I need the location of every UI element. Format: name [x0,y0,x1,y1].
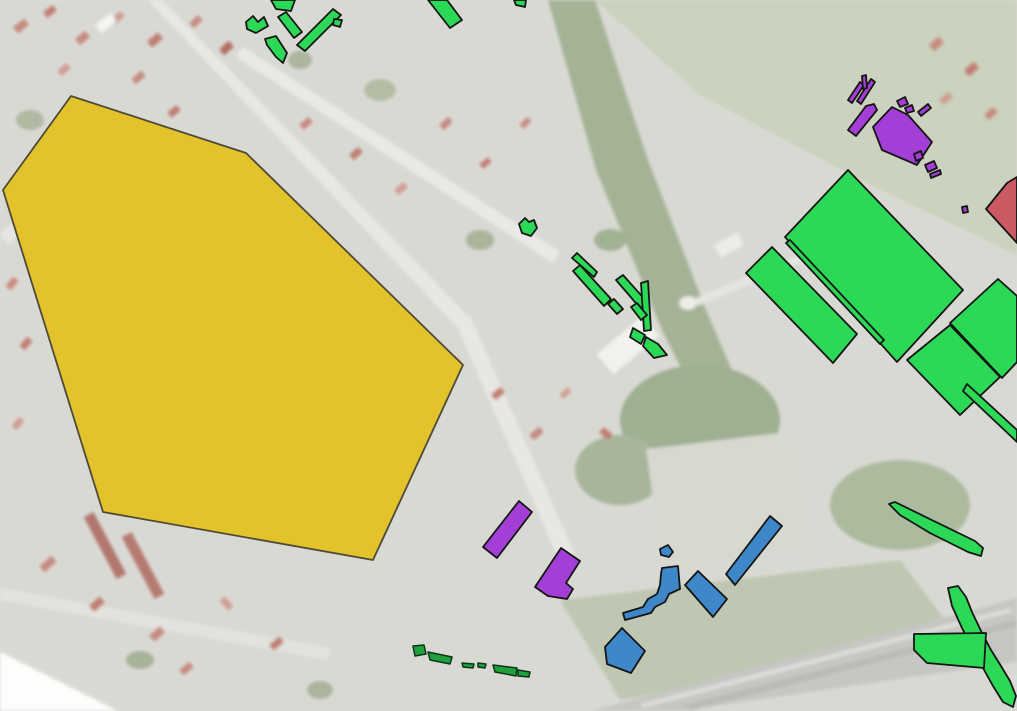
basemap-tree-dot [307,681,333,699]
green-building-feature[interactable] [333,19,342,27]
dark-green-vegetation-feature[interactable] [478,663,486,668]
basemap-tree-dot [466,230,494,250]
basemap-tree-dot [594,229,626,251]
purple-building-feature[interactable] [962,206,968,213]
dark-green-vegetation-feature[interactable] [518,670,530,677]
purple-building-feature[interactable] [862,75,867,89]
basemap-tree-dot [364,79,396,101]
dark-green-vegetation-feature[interactable] [413,645,426,656]
purple-building-feature[interactable] [914,151,923,161]
basemap-tree-dot [288,51,312,69]
basemap-tree-dot [16,110,44,130]
map-canvas[interactable] [0,0,1017,711]
dark-green-vegetation-feature[interactable] [462,663,474,668]
map-viewport [0,0,1017,711]
basemap-roundabout [679,296,697,310]
basemap-tree-dot [126,651,154,669]
